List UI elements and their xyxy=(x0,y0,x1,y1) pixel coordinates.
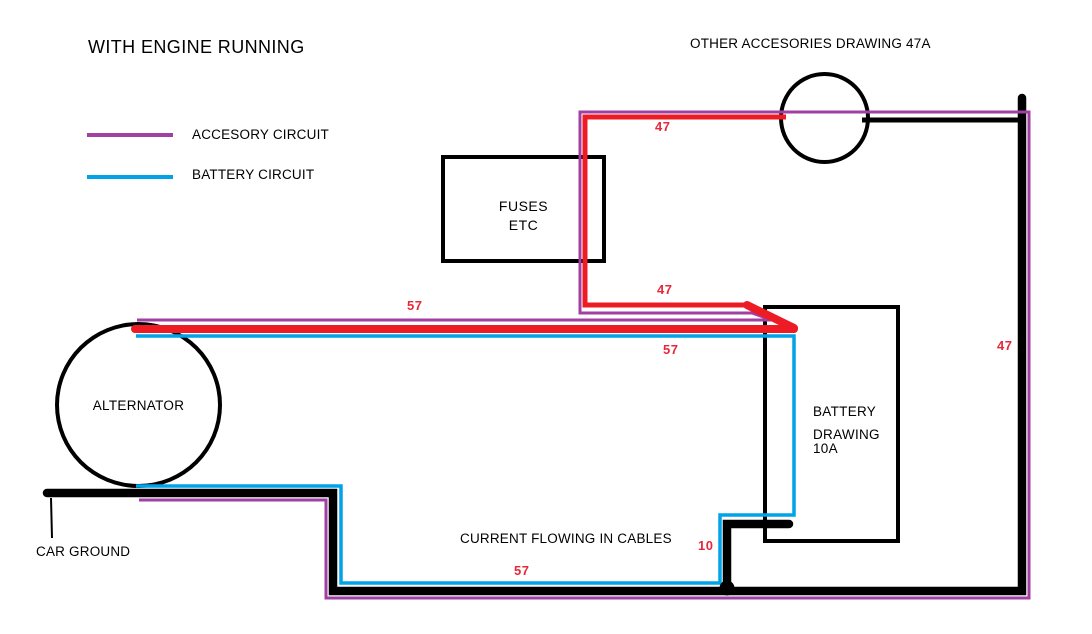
wire-fuse-feed-cable xyxy=(585,117,786,305)
current-value-label: 10 xyxy=(698,540,713,552)
legend-label-accessory-circuit: ACCESORY CIRCUIT xyxy=(192,127,329,142)
wire-fuse-return-diagonal xyxy=(747,305,794,328)
current-value-label: 57 xyxy=(663,344,678,356)
caption-current-flowing: CURRENT FLOWING IN CABLES xyxy=(460,531,672,546)
other-accessories-label: OTHER ACCESORIES DRAWING 47A xyxy=(690,36,931,51)
wire-car-ground-callout-line xyxy=(51,498,52,538)
wire-battery-negative-stub xyxy=(727,524,789,585)
current-value-label: 47 xyxy=(657,284,672,296)
ground-junction-dot xyxy=(720,581,735,596)
legend-label-battery-circuit: BATTERY CIRCUIT xyxy=(192,167,314,182)
current-value-label: 57 xyxy=(514,565,529,577)
diagram-title: WITH ENGINE RUNNING xyxy=(88,37,305,58)
diagram-canvas: ALTERNATOR FUSES ETC BATTERY DRAWING 10A… xyxy=(0,0,1092,634)
car-ground-label: CAR GROUND xyxy=(36,544,130,559)
current-value-label: 57 xyxy=(407,300,422,312)
current-value-label: 47 xyxy=(655,121,670,133)
current-value-label: 47 xyxy=(997,340,1012,352)
